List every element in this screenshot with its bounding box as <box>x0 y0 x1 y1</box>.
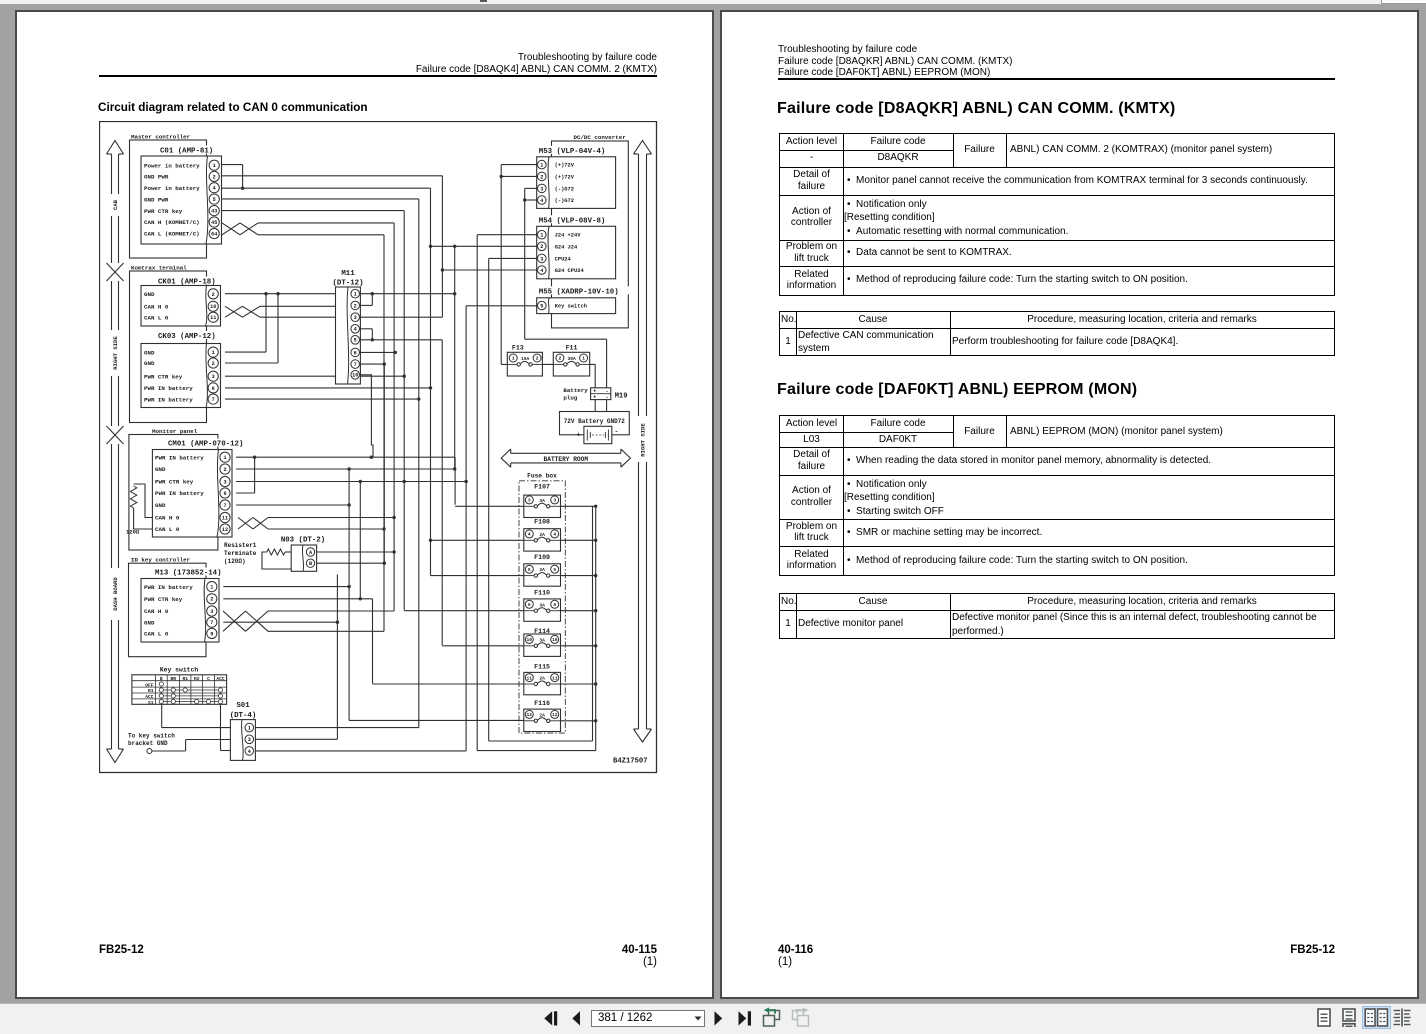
svg-text:5: 5 <box>213 197 216 203</box>
svg-text:72V Battery GND72: 72V Battery GND72 <box>564 418 626 425</box>
svg-text:F109: F109 <box>534 554 550 561</box>
svg-text:GND PWR: GND PWR <box>144 196 169 203</box>
svg-text:GND: GND <box>144 291 155 298</box>
svg-text:45: 45 <box>211 220 217 226</box>
svg-text:DASH BOARD: DASH BOARD <box>112 577 119 611</box>
svg-text:GND: GND <box>155 466 166 473</box>
svg-text:M55 (XADRP-10V-10): M55 (XADRP-10V-10) <box>539 289 619 297</box>
svg-text:11: 11 <box>210 315 216 321</box>
svg-text:PWR CTR key: PWR CTR key <box>144 373 183 380</box>
svg-text:Komtrax terminal: Komtrax terminal <box>131 265 187 272</box>
svg-text:GND: GND <box>144 360 155 367</box>
svg-text:9: 9 <box>210 631 213 637</box>
svg-text:RIGHT SIDE: RIGHT SIDE <box>640 423 647 457</box>
svg-text:1: 1 <box>354 292 357 298</box>
svg-text:C01 (AMP-81): C01 (AMP-81) <box>160 148 213 156</box>
svg-text:2: 2 <box>213 174 216 180</box>
svg-text:Power in battery: Power in battery <box>144 162 200 169</box>
svg-text:5: 5 <box>553 567 556 573</box>
svg-text:64: 64 <box>211 231 217 237</box>
svg-text:C: C <box>207 676 210 682</box>
svg-text:3: 3 <box>212 374 215 380</box>
svg-text:CM01 (AMP-070-12): CM01 (AMP-070-12) <box>168 441 243 449</box>
svg-text:2: 2 <box>558 356 561 362</box>
svg-text:M54 (VLP-08V-8): M54 (VLP-08V-8) <box>539 218 606 226</box>
svg-text:CAN L 0: CAN L 0 <box>155 526 180 533</box>
svg-text:+: + <box>593 388 596 394</box>
svg-text:Key switch: Key switch <box>555 304 587 310</box>
svg-text:F110: F110 <box>534 589 550 596</box>
svg-text:PWR CTR key: PWR CTR key <box>155 479 194 486</box>
svg-text:PWR IN battery: PWR IN battery <box>144 584 193 591</box>
svg-text:F107: F107 <box>534 484 550 491</box>
svg-text:4: 4 <box>540 268 543 274</box>
svg-text:7: 7 <box>354 362 357 368</box>
svg-text:(-)G72: (-)G72 <box>555 186 574 192</box>
svg-text:GND: GND <box>155 502 166 509</box>
svg-text:F115: F115 <box>534 663 550 670</box>
svg-text:Resister1: Resister1 <box>224 542 257 549</box>
svg-text:CAN L 0: CAN L 0 <box>144 631 169 638</box>
svg-text:PWR IN battery: PWR IN battery <box>144 396 193 403</box>
svg-text:4: 4 <box>540 198 543 204</box>
svg-text:6: 6 <box>528 602 531 608</box>
svg-text:DC/DC converter: DC/DC converter <box>574 134 627 141</box>
svg-text:Key switch: Key switch <box>160 667 199 674</box>
svg-text:CK03 (AMP-12): CK03 (AMP-12) <box>158 333 216 341</box>
svg-text:Terminate: Terminate <box>224 550 257 557</box>
svg-text:Fuse box: Fuse box <box>527 473 557 480</box>
svg-text:2: 2 <box>540 174 543 180</box>
svg-text:GND: GND <box>144 619 155 626</box>
svg-text:CAN H 0: CAN H 0 <box>155 515 180 522</box>
svg-text:+: + <box>593 395 596 401</box>
svg-text:-: - <box>615 429 619 436</box>
svg-text:F116: F116 <box>534 700 550 707</box>
svg-text:N03 (DT-2): N03 (DT-2) <box>281 537 325 545</box>
svg-text:-: - <box>606 388 609 394</box>
svg-text:12: 12 <box>552 712 558 718</box>
svg-text:2: 2 <box>212 292 215 298</box>
svg-text:S01: S01 <box>236 702 250 710</box>
svg-text:J24 +24V: J24 +24V <box>555 233 582 239</box>
svg-text:12: 12 <box>527 712 533 718</box>
svg-text:1: 1 <box>248 725 251 731</box>
svg-text:PWR CTR key: PWR CTR key <box>144 596 183 603</box>
svg-text:7: 7 <box>212 397 215 403</box>
svg-text:2: 2 <box>354 303 357 309</box>
svg-text:5: 5 <box>354 338 357 344</box>
svg-text:10: 10 <box>210 304 216 310</box>
svg-text:11: 11 <box>552 675 558 681</box>
svg-text:CAN L 0: CAN L 0 <box>144 314 169 321</box>
svg-text:10: 10 <box>352 373 358 379</box>
svg-text:CAN H 0: CAN H 0 <box>144 304 169 311</box>
svg-text:1: 1 <box>212 350 215 356</box>
svg-text:3: 3 <box>210 609 213 615</box>
svg-text:1: 1 <box>540 162 543 168</box>
svg-text:S1: S1 <box>148 700 154 706</box>
svg-text:CAN H 0: CAN H 0 <box>144 608 169 615</box>
svg-text:M53 (VLP-04V-4): M53 (VLP-04V-4) <box>539 148 606 156</box>
svg-text:Monitor panel: Monitor panel <box>152 428 198 435</box>
svg-text:5: 5 <box>528 567 531 573</box>
svg-text:4: 4 <box>553 532 556 538</box>
svg-text:10: 10 <box>552 637 558 643</box>
svg-text:G24 J24: G24 J24 <box>555 244 578 250</box>
svg-text:PWR IN battery: PWR IN battery <box>155 490 204 497</box>
svg-text:PWR CTR key: PWR CTR key <box>144 208 183 215</box>
svg-text:To key switch: To key switch <box>128 733 175 740</box>
svg-text:1: 1 <box>213 163 216 169</box>
svg-text:3: 3 <box>248 737 251 743</box>
svg-text:R1: R1 <box>148 688 154 694</box>
svg-text:F13: F13 <box>512 345 524 352</box>
svg-text:4: 4 <box>248 749 251 755</box>
svg-text:2: 2 <box>223 467 226 473</box>
svg-text:4: 4 <box>528 532 531 538</box>
svg-text:RIGHT SIDE: RIGHT SIDE <box>112 336 119 370</box>
svg-text:GND: GND <box>144 349 155 356</box>
svg-text:M19: M19 <box>615 393 628 401</box>
svg-text:(+)72V: (+)72V <box>555 174 575 180</box>
svg-text:3: 3 <box>553 498 556 504</box>
svg-text:2: 2 <box>210 597 213 603</box>
svg-text:6: 6 <box>212 386 215 392</box>
svg-text:(DT-12): (DT-12) <box>332 280 363 288</box>
svg-text:B: B <box>160 676 163 682</box>
svg-text:6: 6 <box>354 350 357 356</box>
svg-text:2: 2 <box>212 361 215 367</box>
svg-text:1: 1 <box>540 233 543 239</box>
svg-text:G24 CPU24: G24 CPU24 <box>555 268 585 274</box>
svg-text:120Ω: 120Ω <box>126 529 140 536</box>
svg-text:1: 1 <box>512 356 515 362</box>
svg-text:ID key controller: ID key controller <box>131 557 191 564</box>
svg-text:BR: BR <box>171 676 177 682</box>
svg-text:+: + <box>577 432 581 439</box>
svg-text:43: 43 <box>211 208 217 214</box>
svg-text:Battery: Battery <box>563 387 588 394</box>
svg-text:B: B <box>309 561 312 567</box>
svg-text:1: 1 <box>223 455 226 461</box>
svg-text:3: 3 <box>528 498 531 504</box>
svg-text:(-)G72: (-)G72 <box>555 198 574 204</box>
svg-text:plug: plug <box>563 395 577 402</box>
svg-text:Master controller: Master controller <box>131 134 191 141</box>
svg-text:OFF: OFF <box>145 682 154 688</box>
svg-text:R2: R2 <box>194 676 200 682</box>
svg-text:B4Z17507: B4Z17507 <box>613 758 648 766</box>
svg-text:3: 3 <box>540 256 543 262</box>
svg-text:M11: M11 <box>341 270 355 278</box>
svg-text:(+)72V: (+)72V <box>555 163 575 169</box>
svg-text:12: 12 <box>222 527 228 533</box>
svg-text:5: 5 <box>540 303 543 309</box>
svg-text:F11: F11 <box>566 345 578 352</box>
svg-text:6: 6 <box>553 602 556 608</box>
svg-text:R1: R1 <box>182 676 188 682</box>
svg-text:M13 (173852-14): M13 (173852-14) <box>155 570 222 578</box>
svg-text:Power in battery: Power in battery <box>144 185 200 192</box>
svg-text:10: 10 <box>527 637 533 643</box>
svg-text:11: 11 <box>222 515 228 521</box>
svg-text:PWR IN battery: PWR IN battery <box>155 454 204 461</box>
svg-text:GND PWR: GND PWR <box>144 174 169 181</box>
svg-text:CPU24: CPU24 <box>555 256 572 262</box>
svg-text:F108: F108 <box>534 519 550 526</box>
svg-text:CAN L (KOMNET/C): CAN L (KOMNET/C) <box>144 231 200 238</box>
svg-text:CAB: CAB <box>112 199 119 210</box>
svg-text:ACC: ACC <box>216 676 225 682</box>
svg-text:bracket GND: bracket GND <box>128 740 168 747</box>
svg-text:1: 1 <box>582 356 585 362</box>
svg-text:(120Ω): (120Ω) <box>224 558 246 565</box>
svg-text:2: 2 <box>540 244 543 250</box>
svg-text:3: 3 <box>540 186 543 192</box>
svg-text:11: 11 <box>527 675 533 681</box>
svg-text:2: 2 <box>536 356 539 362</box>
svg-text:7: 7 <box>210 620 213 626</box>
svg-text:3: 3 <box>223 479 226 485</box>
svg-text:4: 4 <box>213 186 216 192</box>
svg-text:CAN H (KOMNET/C): CAN H (KOMNET/C) <box>144 219 200 226</box>
svg-text:ACC: ACC <box>145 694 154 700</box>
svg-text:BATTERY ROOM: BATTERY ROOM <box>544 456 589 463</box>
svg-text:PWR IN battery: PWR IN battery <box>144 385 193 392</box>
svg-text:6: 6 <box>223 491 226 497</box>
svg-text:1: 1 <box>210 584 213 590</box>
svg-text:3: 3 <box>354 315 357 321</box>
svg-text:7: 7 <box>223 503 226 509</box>
svg-text:-: - <box>606 395 609 401</box>
svg-text:(DT-4): (DT-4) <box>230 712 257 720</box>
svg-text:4: 4 <box>354 327 357 333</box>
